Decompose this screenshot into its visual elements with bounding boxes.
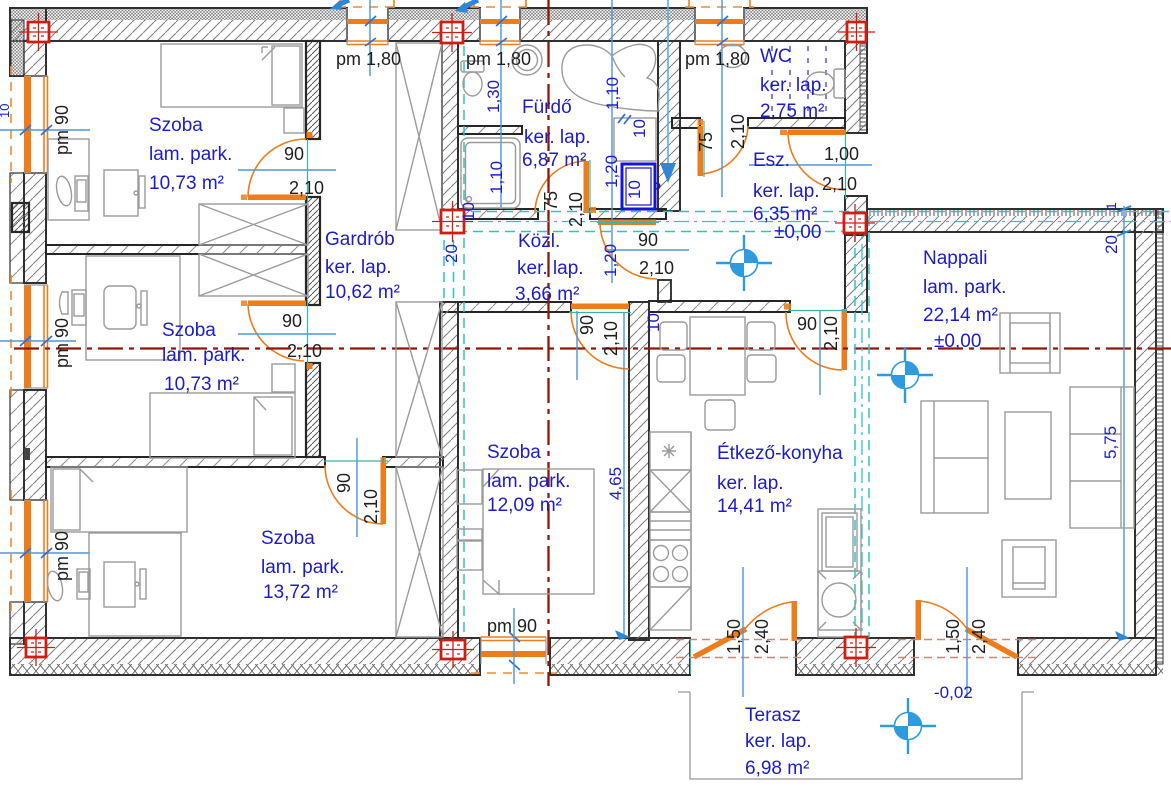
svg-text:2,10: 2,10 bbox=[601, 321, 621, 356]
svg-text:lam. park.: lam. park. bbox=[149, 144, 232, 165]
svg-text:90: 90 bbox=[282, 311, 302, 331]
svg-text:2,10: 2,10 bbox=[287, 341, 322, 361]
svg-text:ker. lap.: ker. lap. bbox=[517, 258, 584, 279]
svg-text:4,65: 4,65 bbox=[606, 467, 625, 500]
svg-text:Közl.: Közl. bbox=[518, 231, 560, 252]
svg-text:pm 1,80: pm 1,80 bbox=[336, 49, 401, 69]
svg-text:ker. lap.: ker. lap. bbox=[524, 127, 591, 148]
svg-text:75: 75 bbox=[696, 132, 716, 152]
svg-text:Nappali: Nappali bbox=[923, 248, 987, 269]
svg-text:3,66 m²: 3,66 m² bbox=[515, 284, 579, 305]
svg-text:90: 90 bbox=[638, 230, 658, 250]
svg-text:pm 90: pm 90 bbox=[52, 105, 72, 155]
svg-text:2,10: 2,10 bbox=[566, 192, 586, 227]
svg-text:1,50: 1,50 bbox=[943, 619, 963, 654]
svg-text:10,73 m²: 10,73 m² bbox=[164, 374, 239, 395]
svg-text:90: 90 bbox=[334, 473, 354, 493]
svg-text:10: 10 bbox=[459, 202, 478, 221]
svg-text:pm 90: pm 90 bbox=[52, 531, 72, 581]
svg-text:22,14 m²: 22,14 m² bbox=[923, 305, 998, 326]
svg-text:14,41 m²: 14,41 m² bbox=[717, 496, 792, 517]
svg-text:90: 90 bbox=[284, 144, 304, 164]
svg-text:2,75 m²: 2,75 m² bbox=[760, 101, 824, 122]
svg-text:1,50: 1,50 bbox=[724, 619, 744, 654]
svg-text:20: 20 bbox=[442, 244, 461, 263]
svg-text:20: 20 bbox=[1102, 235, 1121, 254]
svg-text:90: 90 bbox=[577, 315, 597, 335]
svg-text:1,10: 1,10 bbox=[603, 77, 622, 110]
svg-text:2,40: 2,40 bbox=[969, 619, 989, 654]
svg-text:1,20: 1,20 bbox=[602, 155, 621, 188]
svg-text:2,40: 2,40 bbox=[752, 619, 772, 654]
svg-text:Terasz: Terasz bbox=[745, 705, 801, 726]
svg-text:ker. lap.: ker. lap. bbox=[745, 731, 812, 752]
svg-text:Szoba: Szoba bbox=[162, 320, 216, 341]
svg-text:6,87 m²: 6,87 m² bbox=[522, 150, 586, 171]
svg-text:2,10: 2,10 bbox=[639, 258, 674, 278]
svg-text:±0,00: ±0,00 bbox=[774, 222, 821, 243]
svg-text:2,10: 2,10 bbox=[289, 178, 324, 198]
svg-text:lam. park.: lam. park. bbox=[923, 277, 1006, 298]
svg-text:Fürdő: Fürdő bbox=[522, 97, 572, 118]
svg-text:ker. lap.: ker. lap. bbox=[760, 75, 827, 96]
svg-text:90: 90 bbox=[797, 314, 817, 334]
svg-text:ker. lap.: ker. lap. bbox=[717, 473, 784, 494]
svg-text:Szoba: Szoba bbox=[487, 442, 541, 463]
svg-text:12,09 m²: 12,09 m² bbox=[487, 495, 562, 516]
svg-text:pm 1,80: pm 1,80 bbox=[466, 49, 531, 69]
svg-text:Szoba: Szoba bbox=[261, 528, 315, 549]
svg-text:5,75: 5,75 bbox=[1101, 426, 1120, 459]
svg-text:6,98 m²: 6,98 m² bbox=[745, 758, 809, 779]
svg-text:1,00: 1,00 bbox=[824, 144, 859, 164]
svg-text:ker. lap.: ker. lap. bbox=[325, 257, 392, 278]
svg-text:2,10: 2,10 bbox=[361, 489, 381, 524]
svg-text:WC: WC bbox=[760, 46, 792, 67]
svg-text:2,10: 2,10 bbox=[728, 114, 748, 149]
svg-text:75: 75 bbox=[541, 191, 561, 211]
svg-text:1,30: 1,30 bbox=[484, 80, 503, 113]
svg-text:Szoba: Szoba bbox=[149, 115, 203, 136]
svg-text:Esz.: Esz. bbox=[753, 150, 790, 171]
svg-text:pm 1,80: pm 1,80 bbox=[685, 49, 750, 69]
svg-text:pm 90: pm 90 bbox=[52, 318, 72, 368]
svg-text:±0,00: ±0,00 bbox=[934, 331, 981, 352]
svg-text:ker. lap.: ker. lap. bbox=[753, 181, 820, 202]
svg-text:10,62 m²: 10,62 m² bbox=[325, 282, 400, 303]
svg-text:lam. park.: lam. park. bbox=[487, 471, 570, 492]
svg-text:10: 10 bbox=[0, 104, 12, 118]
svg-text:Étkező-konyha: Étkező-konyha bbox=[717, 443, 843, 464]
svg-text:2,10: 2,10 bbox=[822, 174, 857, 194]
svg-text:10: 10 bbox=[625, 180, 644, 199]
svg-text:1,20: 1,20 bbox=[601, 244, 620, 277]
svg-text:10: 10 bbox=[644, 313, 663, 332]
svg-text:lam. park.: lam. park. bbox=[261, 557, 344, 578]
svg-text:2,10: 2,10 bbox=[821, 316, 841, 351]
svg-text:pm 90: pm 90 bbox=[487, 616, 537, 636]
svg-text:1,10: 1,10 bbox=[487, 161, 506, 194]
svg-text:lam. park.: lam. park. bbox=[162, 345, 245, 366]
svg-text:1: 1 bbox=[1103, 202, 1119, 210]
svg-text:Gardrób: Gardrób bbox=[325, 229, 395, 250]
svg-text:10,73 m²: 10,73 m² bbox=[149, 173, 224, 194]
svg-text:10: 10 bbox=[630, 119, 649, 138]
svg-text:13,72 m²: 13,72 m² bbox=[263, 582, 338, 603]
svg-text:-0,02: -0,02 bbox=[934, 683, 973, 702]
